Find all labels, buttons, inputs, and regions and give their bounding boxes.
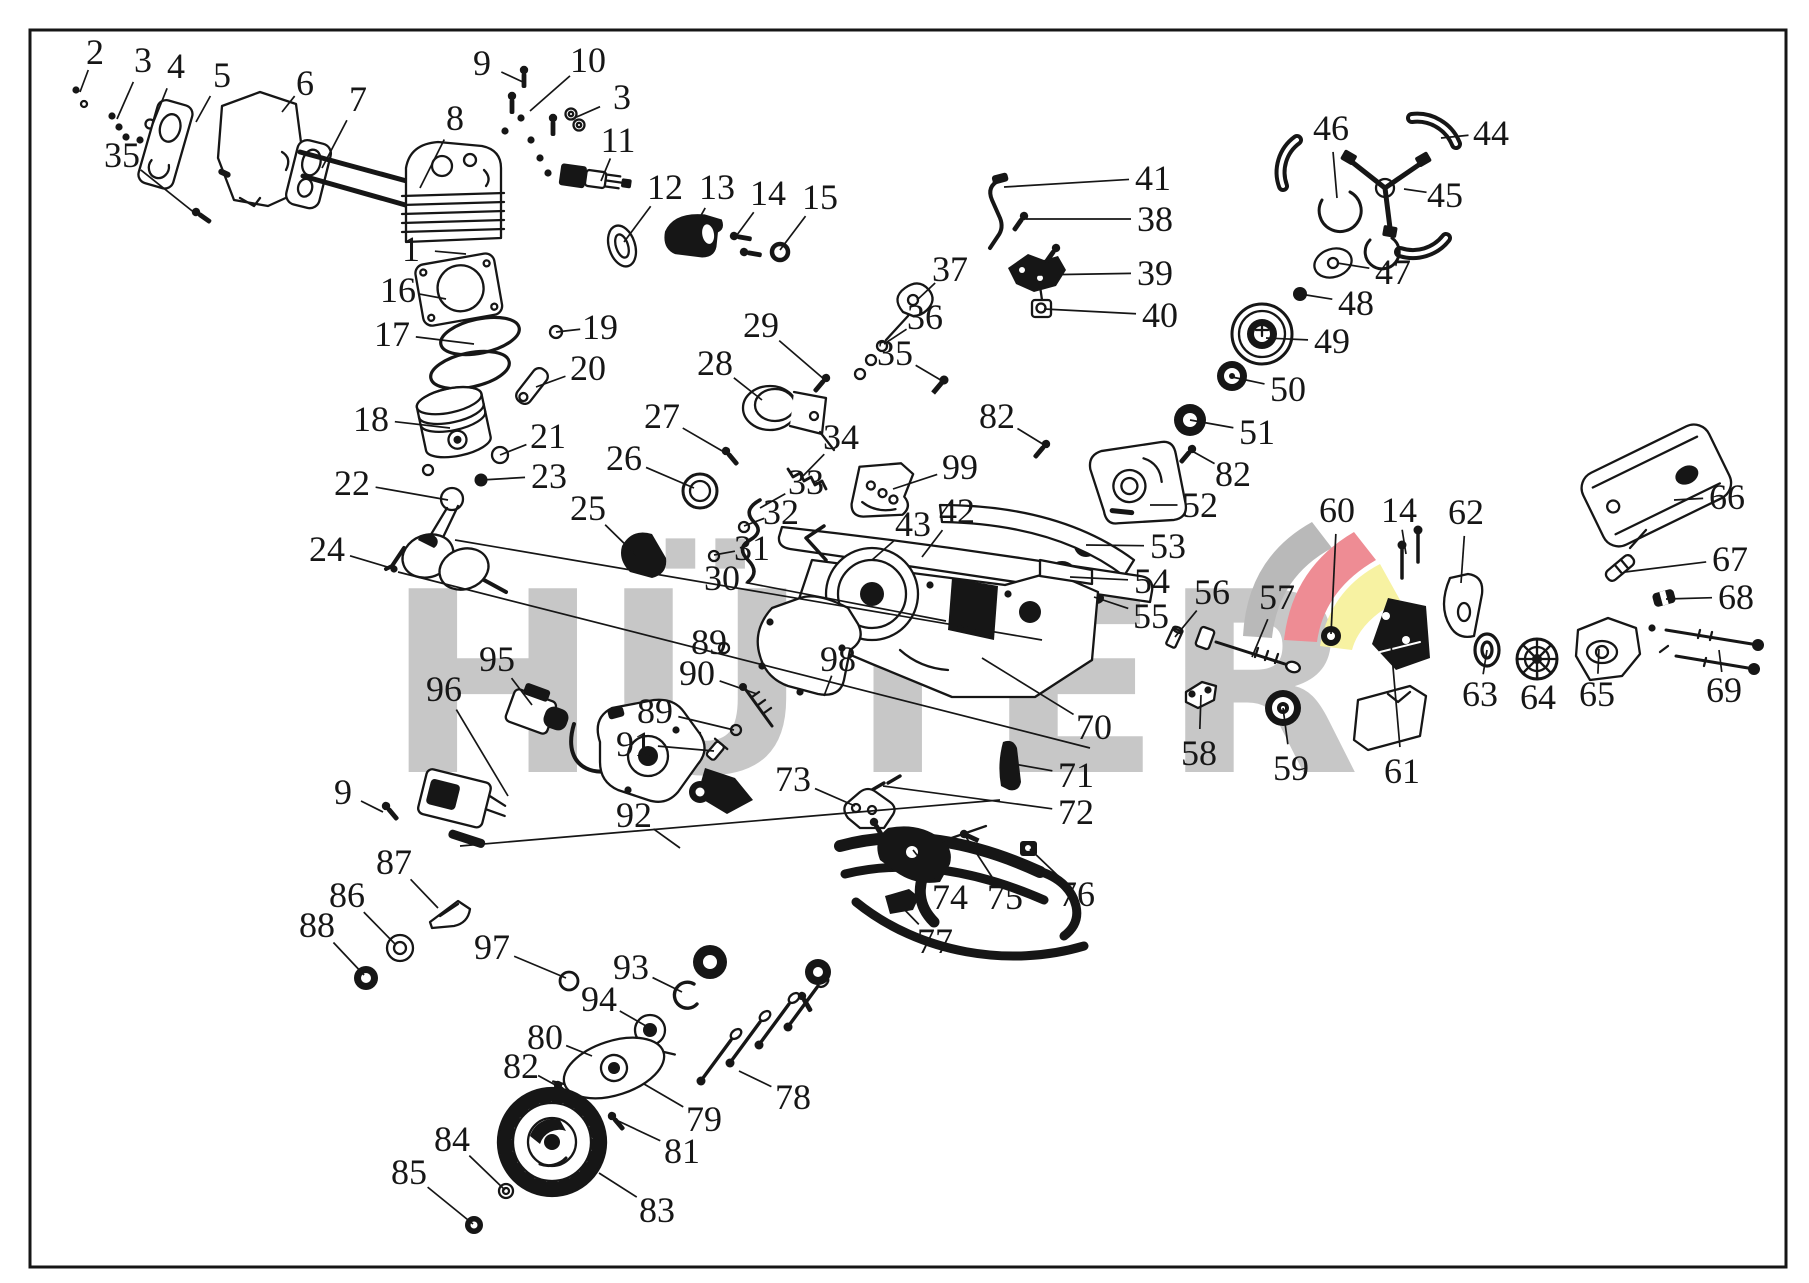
callout-label-87: 87 bbox=[376, 842, 412, 882]
head-screws-cluster bbox=[501, 66, 584, 177]
callout-label-1: 1 bbox=[402, 229, 420, 269]
callout-label-96: 96 bbox=[426, 669, 462, 709]
leader-line-69 bbox=[1719, 650, 1722, 672]
callout-label-62: 62 bbox=[1448, 492, 1484, 532]
callout-label-37: 37 bbox=[932, 249, 968, 289]
callout-label-4: 4 bbox=[167, 46, 185, 86]
flywheel-part bbox=[498, 1088, 606, 1196]
leader-line-12 bbox=[624, 206, 651, 242]
callout-label-93: 93 bbox=[613, 947, 649, 987]
leader-line-97 bbox=[514, 956, 566, 978]
callout-label-75: 75 bbox=[987, 877, 1023, 917]
bearing-50-part bbox=[1217, 361, 1247, 391]
callout-label-30: 30 bbox=[704, 558, 740, 598]
callout-label-83: 83 bbox=[639, 1190, 675, 1230]
callout-label-17: 17 bbox=[374, 314, 410, 354]
callout-label-3: 3 bbox=[134, 40, 152, 80]
callout-label-82: 82 bbox=[1215, 454, 1251, 494]
leader-line-78 bbox=[739, 1071, 771, 1087]
callout-label-22: 22 bbox=[334, 463, 370, 503]
leader-line-23 bbox=[481, 477, 525, 480]
seal-ring-15-part bbox=[772, 244, 788, 260]
callout-label-55: 55 bbox=[1133, 596, 1169, 636]
callout-label-97: 97 bbox=[474, 927, 510, 967]
leader-line-15 bbox=[780, 216, 806, 250]
bracket-39 bbox=[1008, 254, 1066, 292]
callout-label-95: 95 bbox=[479, 639, 515, 679]
leader-line-86 bbox=[364, 912, 396, 945]
callout-label-36: 36 bbox=[907, 297, 943, 337]
callout-label-59: 59 bbox=[1273, 748, 1309, 788]
parts-diagram-svg: HÜTER bbox=[0, 0, 1809, 1283]
ring-97-part bbox=[560, 972, 578, 990]
callout-label-19: 19 bbox=[582, 307, 618, 347]
callout-label-48: 48 bbox=[1338, 283, 1374, 323]
callout-label-85: 85 bbox=[391, 1152, 427, 1192]
callout-label-50: 50 bbox=[1270, 369, 1306, 409]
callout-label-9: 9 bbox=[334, 772, 352, 812]
leader-line-2 bbox=[80, 70, 88, 92]
callout-label-49: 49 bbox=[1314, 321, 1350, 361]
leader-line-58 bbox=[1200, 695, 1201, 729]
callout-label-57: 57 bbox=[1259, 577, 1295, 617]
callout-label-82: 82 bbox=[503, 1046, 539, 1086]
screw-81-part bbox=[606, 1110, 627, 1132]
bracket-77-part bbox=[885, 889, 919, 914]
leader-line-26 bbox=[646, 467, 694, 488]
callout-label-8: 8 bbox=[446, 98, 464, 138]
callout-label-52: 52 bbox=[1182, 485, 1218, 525]
leader-line-46 bbox=[1333, 152, 1337, 198]
callout-label-68: 68 bbox=[1718, 577, 1754, 617]
callout-label-82: 82 bbox=[979, 396, 1015, 436]
callout-label-11: 11 bbox=[601, 120, 636, 160]
leader-line-67 bbox=[1625, 562, 1706, 572]
callout-label-43: 43 bbox=[895, 504, 931, 544]
leader-line-79 bbox=[644, 1084, 683, 1107]
handle-bracket-assembly bbox=[990, 172, 1066, 317]
callout-label-65: 65 bbox=[1579, 674, 1615, 714]
callout-label-15: 15 bbox=[802, 177, 838, 217]
callout-label-46: 46 bbox=[1313, 108, 1349, 148]
callout-label-54: 54 bbox=[1134, 561, 1170, 601]
callout-label-34: 34 bbox=[823, 417, 859, 457]
leader-line-29 bbox=[779, 341, 825, 380]
callout-label-71: 71 bbox=[1058, 755, 1094, 795]
callout-label-29: 29 bbox=[743, 305, 779, 345]
callout-label-18: 18 bbox=[353, 399, 389, 439]
spark-plug-part bbox=[558, 163, 632, 195]
callout-label-38: 38 bbox=[1137, 199, 1173, 239]
callout-label-90: 90 bbox=[679, 653, 715, 693]
leader-line-3 bbox=[117, 82, 133, 119]
callout-label-9: 9 bbox=[473, 43, 491, 83]
callout-label-67: 67 bbox=[1712, 539, 1748, 579]
callout-label-39: 39 bbox=[1137, 253, 1173, 293]
piston-part bbox=[414, 382, 493, 462]
callout-label-94: 94 bbox=[581, 979, 617, 1019]
leader-line-1 bbox=[435, 251, 466, 254]
leader-line-9 bbox=[501, 72, 525, 83]
leader-line-19 bbox=[556, 329, 580, 332]
callout-label-21: 21 bbox=[530, 416, 566, 456]
diagram-canvas: HÜTER bbox=[0, 0, 1809, 1283]
case-bolts-78-part bbox=[697, 975, 831, 1085]
intake-gasket-part bbox=[603, 222, 641, 270]
callout-label-58: 58 bbox=[1181, 733, 1217, 773]
callout-label-81: 81 bbox=[664, 1131, 700, 1171]
cylinder-cover-part bbox=[190, 92, 302, 226]
leader-line-35 bbox=[916, 365, 944, 382]
intake-boot-part bbox=[661, 209, 728, 264]
leader-line-9 bbox=[361, 801, 383, 812]
cylinder-part bbox=[402, 142, 504, 242]
callout-label-45: 45 bbox=[1427, 175, 1463, 215]
screw-82b-part bbox=[1177, 443, 1198, 465]
callout-label-51: 51 bbox=[1239, 412, 1275, 452]
leader-line-53 bbox=[1086, 545, 1144, 546]
leader-line-87 bbox=[411, 879, 438, 908]
cylinder-gasket-part bbox=[414, 252, 504, 327]
callout-label-44: 44 bbox=[1473, 113, 1509, 153]
callout-label-28: 28 bbox=[697, 343, 733, 383]
callout-label-66: 66 bbox=[1709, 477, 1745, 517]
tank-bolts-69-part bbox=[1648, 624, 1764, 675]
leader-line-21 bbox=[500, 445, 526, 455]
leader-line-88 bbox=[333, 942, 364, 975]
callout-label-61: 61 bbox=[1384, 751, 1420, 791]
leader-line-84 bbox=[469, 1156, 505, 1190]
leader-line-22 bbox=[376, 487, 448, 500]
callout-label-88: 88 bbox=[299, 905, 335, 945]
callout-label-35: 35 bbox=[104, 135, 140, 175]
callout-label-84: 84 bbox=[434, 1119, 470, 1159]
callout-label-25: 25 bbox=[570, 488, 606, 528]
nut-88-part bbox=[354, 966, 378, 990]
baffle-plate-part bbox=[136, 98, 194, 191]
callout-label-77: 77 bbox=[917, 921, 953, 961]
brake-cover-part bbox=[1086, 429, 1196, 540]
callout-label-76: 76 bbox=[1059, 874, 1095, 914]
callout-label-69: 69 bbox=[1706, 670, 1742, 710]
callout-label-20: 20 bbox=[570, 348, 606, 388]
screw-29-part bbox=[811, 372, 832, 394]
callout-label-6: 6 bbox=[296, 63, 314, 103]
callout-label-27: 27 bbox=[644, 396, 680, 436]
callout-label-7: 7 bbox=[349, 79, 367, 119]
callout-label-60: 60 bbox=[1319, 490, 1355, 530]
callout-label-26: 26 bbox=[606, 438, 642, 478]
callout-label-16: 16 bbox=[380, 270, 416, 310]
starter-cover-65-part bbox=[1576, 618, 1640, 680]
leader-line-5 bbox=[196, 96, 210, 122]
leader-line-17 bbox=[416, 337, 474, 344]
callout-label-64: 64 bbox=[1520, 677, 1556, 717]
callout-label-72: 72 bbox=[1058, 792, 1094, 832]
parts-layer bbox=[72, 66, 1764, 1234]
callout-label-53: 53 bbox=[1150, 526, 1186, 566]
gasket-62-part bbox=[1444, 574, 1482, 637]
leader-line-14 bbox=[734, 212, 754, 239]
callout-label-40: 40 bbox=[1142, 295, 1178, 335]
leader-line-40 bbox=[1044, 309, 1136, 314]
callout-label-23: 23 bbox=[531, 456, 567, 496]
callout-label-24: 24 bbox=[309, 529, 345, 569]
leader-line-10 bbox=[530, 76, 570, 111]
circlip-19b-part bbox=[423, 465, 433, 475]
callout-label-47: 47 bbox=[1375, 252, 1411, 292]
boot-screws-part bbox=[729, 231, 762, 259]
worm-gear-parts bbox=[693, 945, 831, 1014]
callout-label-14: 14 bbox=[750, 173, 786, 213]
callout-label-10: 10 bbox=[570, 40, 606, 80]
callout-label-14: 14 bbox=[1381, 490, 1417, 530]
leader-line-45 bbox=[1404, 189, 1427, 192]
leader-line-65 bbox=[1598, 649, 1599, 674]
leader-line-27 bbox=[683, 428, 724, 452]
circlip-93-part bbox=[674, 982, 697, 1008]
callout-label-42: 42 bbox=[939, 491, 975, 531]
callout-label-41: 41 bbox=[1135, 158, 1171, 198]
leader-line-83 bbox=[599, 1173, 637, 1197]
callout-label-32: 32 bbox=[763, 492, 799, 532]
leader-line-85 bbox=[428, 1187, 473, 1224]
callout-label-63: 63 bbox=[1462, 674, 1498, 714]
callout-label-98: 98 bbox=[820, 639, 856, 679]
callout-label-78: 78 bbox=[775, 1077, 811, 1117]
callout-label-99: 99 bbox=[942, 447, 978, 487]
callout-label-3: 3 bbox=[613, 77, 631, 117]
leader-line-82 bbox=[1017, 429, 1046, 446]
callout-label-91: 91 bbox=[616, 724, 652, 764]
seal-ring-26-part bbox=[683, 474, 717, 508]
callout-label-5: 5 bbox=[213, 55, 231, 95]
callout-label-35: 35 bbox=[877, 333, 913, 373]
callout-label-12: 12 bbox=[647, 167, 683, 207]
callout-label-70: 70 bbox=[1076, 707, 1112, 747]
callout-label-56: 56 bbox=[1194, 572, 1230, 612]
callout-label-74: 74 bbox=[932, 877, 968, 917]
leader-line-82 bbox=[1192, 451, 1215, 464]
coil-screws-14-part bbox=[1398, 526, 1423, 579]
piston-pin-part bbox=[513, 365, 550, 406]
callout-label-2: 2 bbox=[86, 32, 104, 72]
callout-label-13: 13 bbox=[699, 167, 735, 207]
rope-pulley-49 bbox=[1232, 304, 1292, 364]
leader-line-41 bbox=[1004, 179, 1129, 187]
screw-27-part bbox=[720, 445, 741, 467]
callout-label-92: 92 bbox=[616, 795, 652, 835]
screw-82a-part bbox=[1031, 438, 1052, 460]
callout-label-73: 73 bbox=[775, 759, 811, 799]
washer-47 bbox=[1311, 244, 1356, 282]
